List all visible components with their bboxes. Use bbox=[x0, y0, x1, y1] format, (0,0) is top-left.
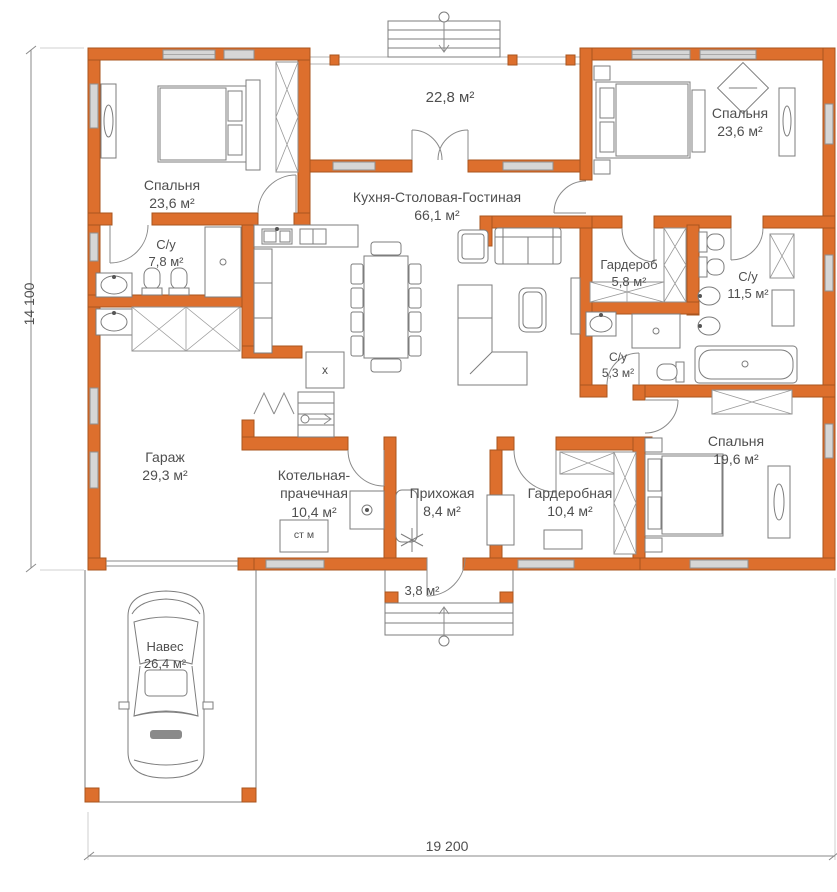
inner-stairs-icon bbox=[298, 392, 334, 437]
floor-plan: 22,8 м² Спальня 23,6 м² Кухня-Столовая-Г… bbox=[0, 0, 837, 892]
living-room-icons bbox=[458, 228, 580, 385]
room-label-kitchen-living: Кухня-Столовая-Гостиная 66,1 м² bbox=[353, 188, 521, 225]
dresser-left-icon bbox=[101, 84, 116, 158]
room-label-bathroom-small: С/у 5,3 м² bbox=[602, 350, 634, 382]
room-label-boiler-laundry: Котельная-прачечная 10,4 м² bbox=[253, 466, 375, 521]
boiler-mark-label: x bbox=[322, 363, 328, 379]
wardrobe-right-top-icon bbox=[779, 88, 795, 156]
room-label-bedroom-right-bottom: Спальня 19,6 м² bbox=[708, 432, 764, 469]
room-label-bedroom-right-top: Спальня 23,6 м² bbox=[712, 104, 768, 141]
room-label-bedroom-left: Спальня 23,6 м² bbox=[144, 176, 200, 213]
wardrobe-left-bedroom-icon bbox=[276, 62, 298, 172]
room-label-terrace: 22,8 м² bbox=[426, 88, 475, 108]
dimension-width-label: 19 200 bbox=[392, 838, 502, 854]
bed-right-top-icon bbox=[594, 66, 705, 174]
bed-left-icon bbox=[158, 80, 260, 170]
carport-outline bbox=[85, 570, 256, 802]
dimension-height-label: 14 100 bbox=[21, 259, 37, 349]
room-label-porch: 3,8 м² bbox=[405, 582, 440, 599]
terrace-steps-icon bbox=[388, 12, 500, 57]
bathroom-small-fixtures bbox=[586, 312, 684, 382]
room-label-wardrobe-small: Гардероб 5,8 м² bbox=[600, 256, 657, 290]
garage-utility-strip bbox=[96, 307, 240, 351]
room-label-carport: Навес 26,4 м² bbox=[144, 638, 186, 672]
room-label-bathroom-left: С/у 7,8 м² bbox=[149, 236, 184, 270]
room-label-bathroom-big: С/у 11,5 м² bbox=[727, 268, 768, 302]
room-label-garage: Гараж 29,3 м² bbox=[142, 448, 187, 485]
room-label-hallway: Прихожая 8,4 м² bbox=[410, 484, 475, 521]
bathroom-big-fixtures bbox=[695, 232, 797, 383]
niche-cabinet-icon bbox=[487, 495, 514, 545]
bedroom-bottom-icons bbox=[645, 390, 792, 552]
kitchen-counter-icon bbox=[254, 225, 358, 353]
dining-table-icon bbox=[351, 242, 421, 372]
car-icon bbox=[119, 591, 213, 778]
room-label-dressing-room: Гардеробная 10,4 м² bbox=[528, 484, 613, 521]
washing-machine-label: ст м bbox=[294, 529, 314, 543]
